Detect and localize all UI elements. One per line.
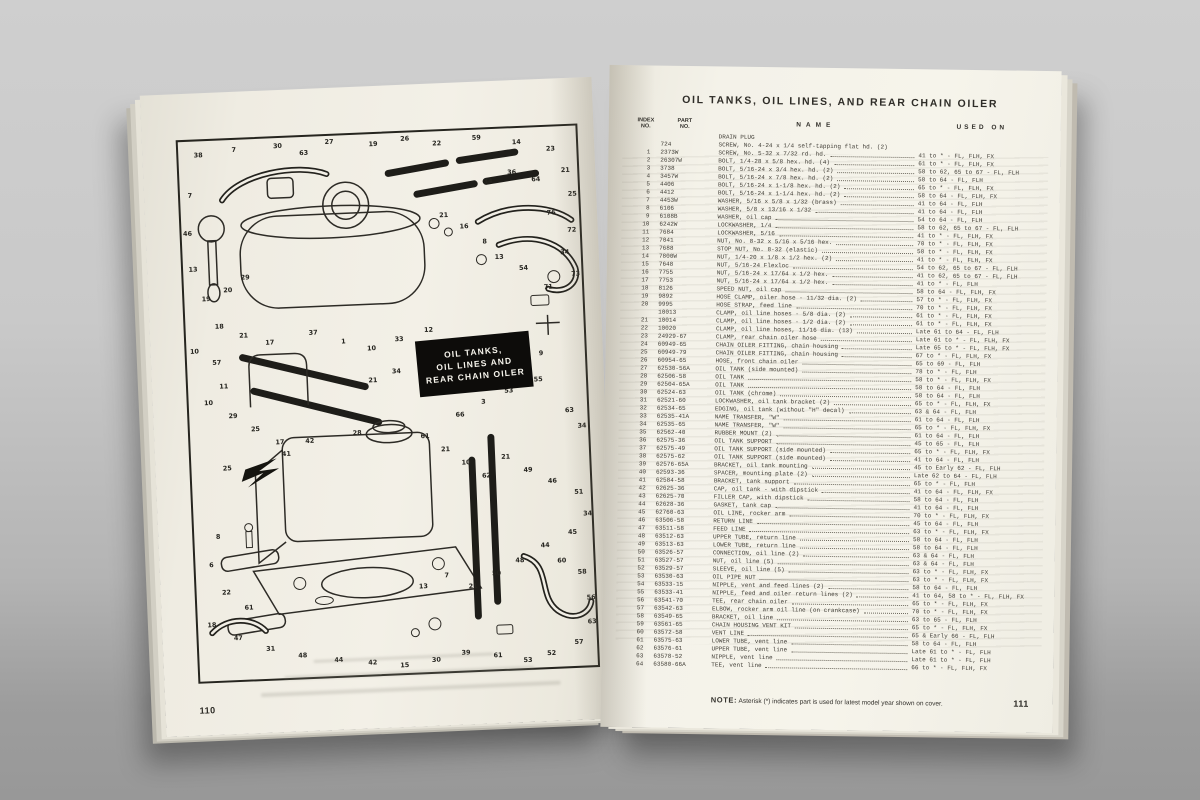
cell-index: 10 — [633, 220, 649, 228]
dotted-leader — [842, 351, 912, 358]
base-plate-shape — [253, 546, 482, 615]
cell-index: 27 — [631, 364, 647, 372]
dotted-leader — [822, 487, 910, 494]
dotted-leader — [832, 271, 912, 278]
cell-index: 31 — [631, 396, 647, 404]
callout-number: 14 — [512, 138, 522, 146]
cell-index: 7 — [634, 196, 650, 204]
cell-index: 41 — [630, 476, 646, 484]
dotted-leader — [793, 262, 913, 270]
dotted-leader — [800, 543, 909, 551]
callout-number: 66 — [455, 410, 465, 418]
cell-index: 20 — [632, 300, 648, 308]
callout-number: 49 — [523, 466, 533, 474]
footnote-text: Asterisk (*) indicates part is used for … — [739, 698, 943, 708]
callout-number: 36 — [507, 168, 517, 176]
left-page: 3873063271926225914232164363425767234737… — [140, 77, 618, 737]
dotted-leader — [861, 295, 913, 302]
callout-number: 50 — [492, 569, 502, 577]
cell-index: 49 — [629, 540, 645, 548]
callout-number: 34 — [577, 421, 587, 429]
callout-number: 18 — [215, 322, 225, 330]
callout-number: 34 — [560, 248, 570, 256]
cell-index: 46 — [629, 516, 645, 524]
parts-table: DRAIN PLUG724SCREW, No. 4-24 x 1/4 self-… — [627, 132, 1044, 674]
callout-number: 62 — [482, 471, 491, 479]
cell-index: 34 — [631, 420, 647, 428]
dotted-leader — [777, 654, 908, 662]
dotted-leader — [815, 207, 913, 214]
callout-number: 3 — [481, 398, 486, 406]
callout-number: 11 — [219, 382, 229, 390]
dotted-leader — [775, 222, 913, 230]
dotted-leader — [803, 551, 909, 558]
callout-number: 29 — [228, 412, 238, 420]
curved-hoses-right — [477, 206, 577, 294]
showthrough-text — [261, 681, 561, 698]
callout-number: 17 — [265, 338, 274, 346]
cell-index: 47 — [629, 524, 645, 532]
open-book: 3873063271926225914232164363425767234737… — [135, 28, 1075, 738]
callout-number: 72 — [567, 226, 576, 234]
dotted-leader — [780, 390, 911, 398]
dotted-leader — [757, 518, 909, 526]
dotted-leader — [830, 151, 914, 158]
cell-index: 44 — [629, 500, 645, 508]
callout-number: 46 — [183, 230, 193, 238]
cell-index: 53 — [628, 572, 644, 580]
callout-number: 34 — [583, 509, 593, 517]
diagram-title-badge: OIL TANKS, OIL LINES AND REAR CHAIN OILE… — [415, 331, 534, 397]
callout-number: 64 — [531, 175, 541, 183]
cell-index: 42 — [630, 484, 646, 492]
cell-index: 22 — [632, 324, 648, 332]
callout-number: 26 — [400, 134, 410, 142]
column-header-used-on: USED ON — [919, 121, 1045, 132]
cell-index: 48 — [629, 532, 645, 540]
cell-index: 13 — [633, 244, 649, 252]
callout-number: 44 — [541, 541, 551, 549]
callout-number: 20 — [223, 286, 233, 294]
right-page: OIL TANKS, OIL LINES, AND REAR CHAIN OIL… — [600, 65, 1061, 733]
cell-index: 35 — [630, 428, 646, 436]
cell-index: 38 — [630, 452, 646, 460]
callout-number: 48 — [298, 651, 308, 659]
dotted-leader — [830, 455, 910, 462]
cell-index: 18 — [632, 284, 648, 292]
callout-number: 45 — [568, 528, 578, 536]
photo-surface: 3873063271926225914232164363425767234737… — [0, 0, 1200, 800]
callout-number: 15 — [400, 661, 410, 669]
dotted-leader — [766, 662, 908, 670]
cell-index: 50 — [629, 548, 645, 556]
page-number-left: 110 — [199, 705, 215, 716]
cell-index: 54 — [628, 580, 644, 588]
callout-number: 29 — [240, 273, 250, 281]
dotted-leader — [844, 191, 914, 198]
callout-number: 51 — [574, 487, 584, 495]
column-header-part: PART NO. — [657, 118, 713, 131]
dotted-leader — [850, 311, 912, 318]
dotted-leader — [802, 367, 911, 375]
callout-number: 41 — [282, 450, 292, 458]
callout-number: 47 — [234, 634, 243, 642]
cell-index: 45 — [629, 508, 645, 516]
page-number-right: 111 — [1013, 699, 1029, 709]
cell-index: 12 — [633, 236, 649, 244]
cell-index: 11 — [633, 228, 649, 236]
callout-number: 61 — [244, 603, 254, 611]
cell-index: 51 — [629, 556, 645, 564]
top-oil-tank-shape — [221, 165, 427, 311]
callout-number: 25 — [223, 464, 233, 472]
callout-number: 22 — [222, 588, 231, 596]
dotted-leader — [776, 214, 914, 222]
callout-number: 16 — [459, 222, 469, 230]
cell-index — [635, 132, 651, 140]
column-header-index: INDEX NO. — [635, 117, 657, 129]
callout-number: 10 — [204, 399, 214, 407]
dotted-leader — [822, 247, 913, 254]
dotted-leader — [850, 319, 912, 326]
dotted-leader — [834, 159, 914, 166]
dotted-leader — [795, 623, 908, 631]
dotted-leader — [857, 327, 912, 334]
cell-index: 2 — [634, 156, 650, 164]
callout-number: 21 — [368, 376, 378, 384]
cell-index: 14 — [633, 252, 649, 260]
dotted-leader — [857, 591, 909, 598]
cell-index: 57 — [628, 604, 644, 612]
callout-number: 21 — [469, 582, 479, 590]
callout-number: 63 — [565, 406, 574, 414]
cell-index: 6 — [634, 188, 650, 196]
cell-index: 8 — [634, 204, 650, 212]
bottom-hoses — [210, 553, 593, 646]
callout-number: 7 — [188, 192, 193, 200]
callout-number: 21 — [239, 331, 249, 339]
callout-number: 54 — [519, 264, 529, 272]
callout-number: 46 — [548, 477, 558, 485]
dotted-leader — [789, 566, 909, 574]
dotted-leader — [777, 614, 908, 622]
callout-number: 25 — [251, 425, 261, 433]
cell-index: 3 — [634, 164, 650, 172]
dotted-leader — [836, 239, 913, 246]
cell-index — [634, 140, 650, 148]
dotted-leader — [783, 422, 910, 430]
cell-index: 40 — [630, 468, 646, 476]
callout-number: 57 — [574, 638, 583, 646]
footnote: NOTE: Asterisk (*) indicates part is use… — [627, 694, 1037, 709]
dotted-leader — [776, 430, 910, 438]
footnote-label: NOTE: — [711, 695, 737, 704]
cell-name: TEE, vent line — [711, 661, 911, 672]
cell-index — [632, 308, 648, 316]
callout-number: 7 — [231, 146, 236, 154]
callout-number: 10 — [461, 458, 471, 466]
cell-part: 63580-66A — [653, 661, 711, 670]
callout-number: 52 — [547, 649, 556, 657]
cell-index: 32 — [631, 404, 647, 412]
cell-index: 28 — [631, 372, 647, 380]
cell-index: 29 — [631, 380, 647, 388]
cell-index: 16 — [633, 268, 649, 276]
callout-number: 10 — [367, 344, 377, 352]
cell-index: 58 — [628, 612, 644, 620]
dotted-leader — [841, 199, 914, 206]
callout-number: 60 — [557, 556, 567, 564]
callout-number: 55 — [534, 375, 544, 383]
callout-number: 30 — [273, 142, 283, 150]
cell-index: 64 — [627, 660, 643, 668]
dotted-leader — [844, 183, 914, 190]
cell-index: 24 — [632, 340, 648, 348]
callout-number: 37 — [309, 328, 318, 336]
dotted-leader — [791, 646, 907, 654]
dotted-leader — [785, 286, 912, 294]
diagram-frame: 3873063271926225914232164363425767234737… — [176, 123, 600, 683]
cell-index: 26 — [631, 356, 647, 364]
exploded-diagram-svg: 3873063271926225914232164363425767234737… — [178, 126, 598, 682]
callout-number: 28 — [353, 429, 363, 437]
dotted-leader — [748, 630, 908, 638]
callout-number: 19 — [202, 295, 212, 303]
callout-number: 21 — [561, 166, 571, 174]
dotted-leader — [812, 463, 910, 470]
callout-number: 13 — [419, 582, 428, 590]
callout-number: 73 — [571, 269, 580, 277]
callout-number: 63 — [299, 149, 308, 157]
callout-number: 17 — [275, 438, 284, 446]
cell-index: 21 — [632, 316, 648, 324]
callout-number: 53 — [523, 656, 532, 664]
dotted-leader — [848, 407, 910, 414]
dotted-leader — [789, 510, 909, 518]
dotted-leader — [802, 359, 911, 367]
cell-index: 5 — [634, 180, 650, 188]
cell-index: 15 — [633, 260, 649, 268]
cell-used-on: 66 to * - FL, FLH, FX — [911, 664, 1037, 674]
callout-number: 25 — [568, 189, 578, 197]
dotted-leader — [784, 414, 911, 422]
cell-index: 61 — [628, 636, 644, 644]
dotted-leader — [792, 598, 908, 606]
callout-number: 33 — [394, 335, 403, 343]
cell-index: 37 — [630, 444, 646, 452]
callout-number: 13 — [188, 265, 197, 273]
dotted-leader — [793, 478, 909, 486]
callout-number: 10 — [190, 347, 200, 355]
dotted-leader — [796, 303, 912, 311]
dotted-leader — [775, 502, 909, 510]
dotted-leader — [832, 279, 912, 286]
cell-index: 36 — [630, 436, 646, 444]
cell-index: 52 — [629, 564, 645, 572]
cell-index: 1 — [634, 148, 650, 156]
callout-number: 76 — [546, 208, 556, 216]
dotted-leader — [779, 230, 913, 238]
callout-number: 7 — [444, 571, 449, 579]
callout-number: 71 — [544, 283, 554, 291]
callout-number: 57 — [212, 359, 221, 367]
cell-index: 56 — [628, 596, 644, 604]
callout-number: 61 — [493, 651, 503, 659]
callout-number: 23 — [546, 144, 555, 152]
callout-number: 59 — [472, 133, 482, 141]
dotted-leader — [837, 167, 914, 174]
cell-index: 17 — [633, 276, 649, 284]
dotted-leader — [748, 374, 911, 382]
callout-number: 8 — [216, 533, 221, 541]
cell-index: 43 — [630, 492, 646, 500]
callout-number: 38 — [194, 151, 204, 159]
dotted-leader — [760, 574, 909, 582]
cell-index: 19 — [632, 292, 648, 300]
callout-number: 58 — [577, 567, 587, 575]
cell-index: 25 — [632, 348, 648, 356]
callout-number: 34 — [392, 367, 402, 375]
column-header-name: NAME — [713, 118, 919, 130]
dotted-leader — [750, 526, 910, 534]
callout-number: 8 — [482, 237, 487, 245]
cell-index: 59 — [628, 620, 644, 628]
cell-index: 23 — [632, 332, 648, 340]
z-logo-mark — [241, 458, 280, 488]
dotted-leader — [778, 558, 909, 566]
dotted-leader — [830, 447, 910, 454]
callout-number: 31 — [266, 645, 276, 653]
callout-number: 13 — [495, 253, 504, 261]
callout-number: 9 — [539, 349, 544, 357]
cell-index: 55 — [628, 588, 644, 596]
page-title: OIL TANKS, OIL LINES, AND REAR CHAIN OIL… — [635, 93, 1045, 111]
callout-number: 27 — [324, 138, 333, 146]
callout-number: 18 — [207, 621, 217, 629]
callout-number: 21 — [501, 453, 511, 461]
dotted-leader — [837, 175, 914, 182]
callout-number: 34 — [483, 177, 493, 185]
callout-number: 21 — [439, 211, 449, 219]
callout-number: 1 — [341, 337, 346, 345]
callout-number: 56 — [587, 593, 597, 601]
dotted-leader — [828, 583, 908, 590]
cell-index: 30 — [631, 388, 647, 396]
dotted-leader — [800, 535, 909, 543]
cell-index: 39 — [630, 460, 646, 468]
callout-number: 6 — [209, 561, 214, 569]
dotted-leader — [748, 382, 911, 390]
cell-index: 62 — [627, 644, 643, 652]
cell-index: 60 — [628, 628, 644, 636]
cell-index: 4 — [634, 172, 650, 180]
dotted-leader — [791, 638, 907, 646]
callout-number: 22 — [432, 139, 441, 147]
dotted-leader — [812, 471, 910, 478]
callout-number: 42 — [305, 437, 314, 445]
dotted-leader — [836, 255, 913, 262]
callout-number: 63 — [588, 617, 597, 625]
dotted-leader — [864, 607, 908, 614]
cell-index: 63 — [627, 652, 643, 660]
dotted-leader — [808, 495, 910, 502]
callout-number: 12 — [424, 326, 433, 334]
dotted-leader — [842, 343, 912, 350]
dotted-leader — [821, 335, 912, 342]
callout-number: 19 — [368, 140, 378, 148]
callout-number: 61 — [420, 432, 430, 440]
cell-index: 9 — [633, 212, 649, 220]
callout-number: 21 — [441, 445, 451, 453]
callout-number: 48 — [515, 556, 525, 564]
cell-index: 33 — [631, 412, 647, 420]
dotted-leader — [776, 438, 910, 446]
dotted-leader — [834, 399, 911, 406]
mount-plates-shape — [219, 522, 287, 636]
